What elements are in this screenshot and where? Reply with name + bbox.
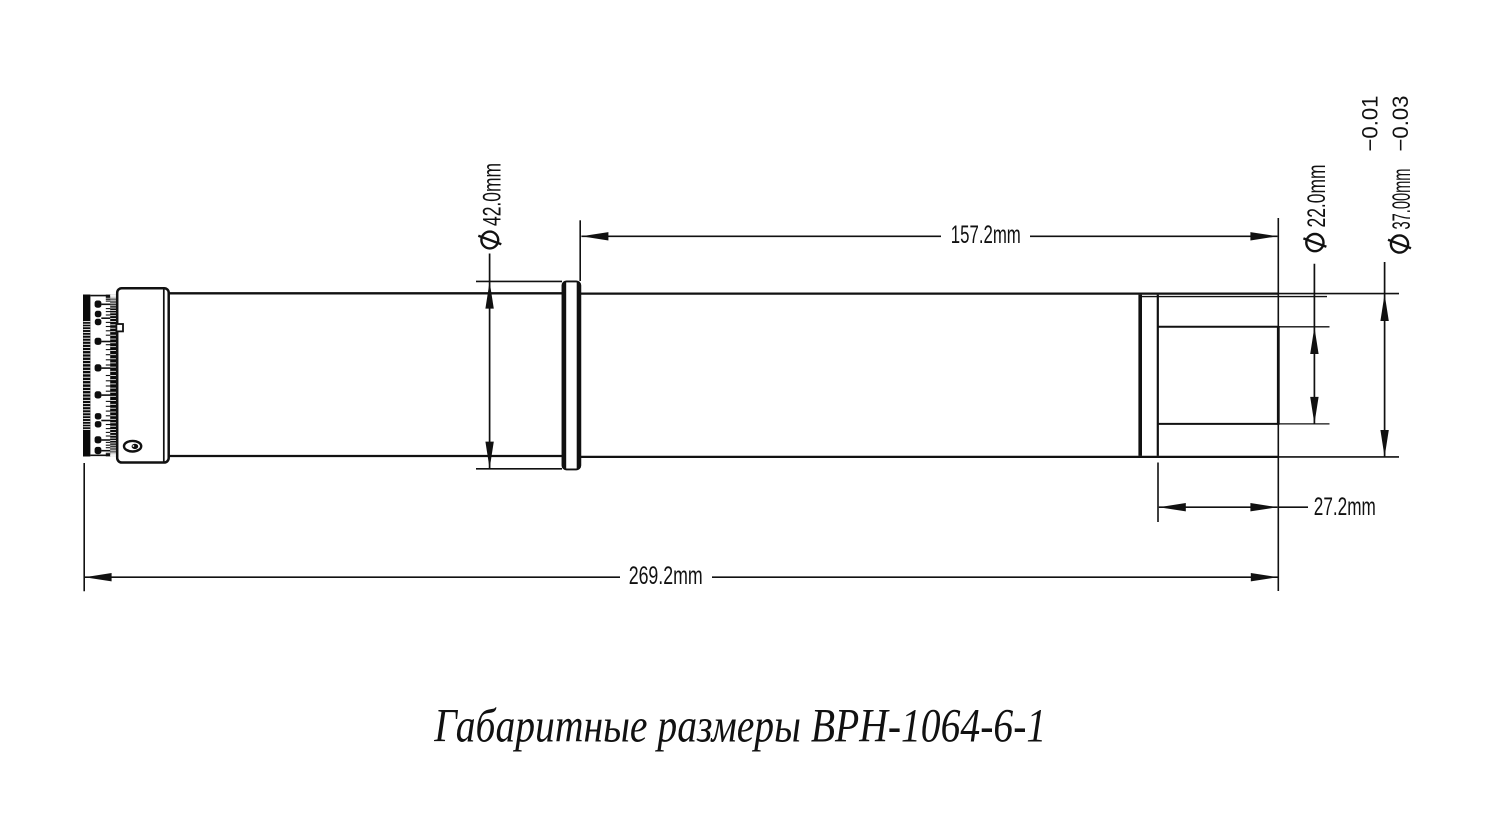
svg-text:157.2mm: 157.2mm: [951, 221, 1021, 249]
svg-text:−0.03: −0.03: [1388, 96, 1413, 152]
svg-text:27.2mm: 27.2mm: [1314, 493, 1376, 521]
svg-text:269.2mm: 269.2mm: [629, 562, 703, 590]
svg-text:Габаритные размеры ВРН-1064-6-: Габаритные размеры ВРН-1064-6-1: [433, 700, 1046, 753]
svg-text:37.00mm: 37.00mm: [1388, 169, 1416, 230]
svg-text:−0.01: −0.01: [1358, 96, 1383, 152]
svg-text:22.0mm: 22.0mm: [1303, 165, 1331, 228]
svg-text:42.0mm: 42.0mm: [478, 163, 506, 226]
